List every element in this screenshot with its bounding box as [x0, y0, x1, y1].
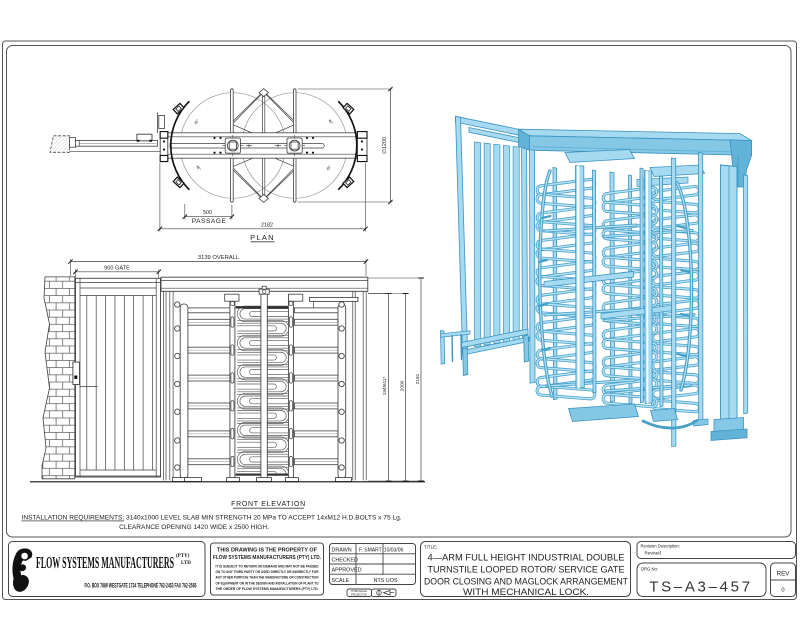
svg-text:REV: REV: [777, 571, 791, 578]
svg-text:2181: 2181: [415, 373, 421, 384]
svg-text:NTS UOS: NTS UOS: [374, 578, 398, 584]
svg-text:PROJECTION: PROJECTION: [351, 593, 367, 596]
svg-text:ANY OTHER PURPOSE THAN THE MAN: ANY OTHER PURPOSE THAN THE MANUFACTURE O…: [216, 576, 319, 580]
svg-text:2000: 2000: [399, 380, 405, 391]
svg-text:LTD: LTD: [181, 561, 191, 566]
svg-text:900 GATE: 900 GATE: [104, 265, 130, 271]
svg-text:THIS DRAWING IS THE PROPERTY O: THIS DRAWING IS THE PROPERTY OF: [217, 548, 317, 554]
svg-text:10/03/06: 10/03/06: [384, 547, 404, 553]
svg-text:CLEARANCE OPENING 1420 WIDE: CLEARANCE OPENING 1420 WIDE x 2500 HIGH.: [119, 524, 269, 531]
svg-text:TS–A3–457: TS–A3–457: [649, 579, 753, 596]
svg-text:WITH MECHANICAL LOCK.: WITH MECHANICAL LOCK.: [463, 587, 589, 597]
svg-text:4—ARM FULL HEIGHT INDUSTRIAL D: 4—ARM FULL HEIGHT INDUSTRIAL DOUBLE: [428, 553, 625, 563]
svg-text:FRONT ELEVATION: FRONT ELEVATION: [231, 501, 306, 508]
svg-text:Revised: Revised: [645, 551, 662, 556]
svg-text:CHECKED: CHECKED: [332, 558, 358, 564]
svg-text:FLOW SYSTEMS MANUFACTURERS: FLOW SYSTEMS MANUFACTURERS: [36, 553, 174, 572]
svg-text:Revision Description:: Revision Description:: [641, 544, 680, 549]
svg-text:OF EQUIPMENT OR IN THE DESIGN: OF EQUIPMENT OR IN THE DESIGN AND INSTAL…: [216, 581, 319, 585]
svg-text:1949/41*: 1949/41*: [382, 377, 387, 396]
svg-text:ON TO ANY THIRD PARTY OR USED: ON TO ANY THIRD PARTY OR USED DIRECTLY O…: [216, 570, 319, 574]
svg-text:3139 OVERALL: 3139 OVERALL: [198, 255, 240, 261]
svg-text:500: 500: [203, 210, 212, 216]
svg-text:INSTALLATION REQUIREMENTS: 3: INSTALLATION REQUIREMENTS: 3140x1000 LEV…: [22, 515, 402, 522]
svg-text:PASSAGE: PASSAGE: [192, 218, 227, 225]
svg-text:PLAN: PLAN: [250, 233, 275, 242]
svg-text:DRG No:: DRG No:: [641, 567, 658, 572]
svg-text:F. SMART: F. SMART: [359, 547, 382, 553]
svg-text:FLOW SYSTEMS MANUFACTURERS (PT: FLOW SYSTEMS MANUFACTURERS (PTY) LTD.: [213, 555, 322, 561]
svg-text:∅1200: ∅1200: [382, 137, 388, 154]
svg-text:TITLE:: TITLE:: [424, 545, 437, 550]
svg-text:P.O. BOX 7889 WESTGATE 1734 TE: P.O. BOX 7889 WESTGATE 1734 TELEPHONE 76…: [85, 584, 197, 590]
svg-text:DRAWN: DRAWN: [332, 547, 352, 553]
svg-text:THE ORDER OF FLOW SYSTEMS MANU: THE ORDER OF FLOW SYSTEMS MANUFACTURERS …: [216, 587, 319, 591]
svg-text:2182: 2182: [261, 222, 273, 228]
svg-text:IT IS SUBJECT TO RETURN ON DEM: IT IS SUBJECT TO RETURN ON DEMAND AND MA…: [216, 565, 319, 569]
svg-text:DOOR CLOSING AND MAGLOCK ARRAN: DOOR CLOSING AND MAGLOCK ARRANGEMENT: [424, 577, 628, 587]
svg-text:0: 0: [781, 588, 784, 594]
svg-text:TURNSTILE LOOPED ROTOR/ SERVIC: TURNSTILE LOOPED ROTOR/ SERVICE GATE: [428, 565, 625, 575]
svg-text:(PTY): (PTY): [176, 554, 190, 559]
svg-text:APPROVED: APPROVED: [332, 568, 362, 574]
svg-text:SCALE: SCALE: [332, 578, 350, 584]
